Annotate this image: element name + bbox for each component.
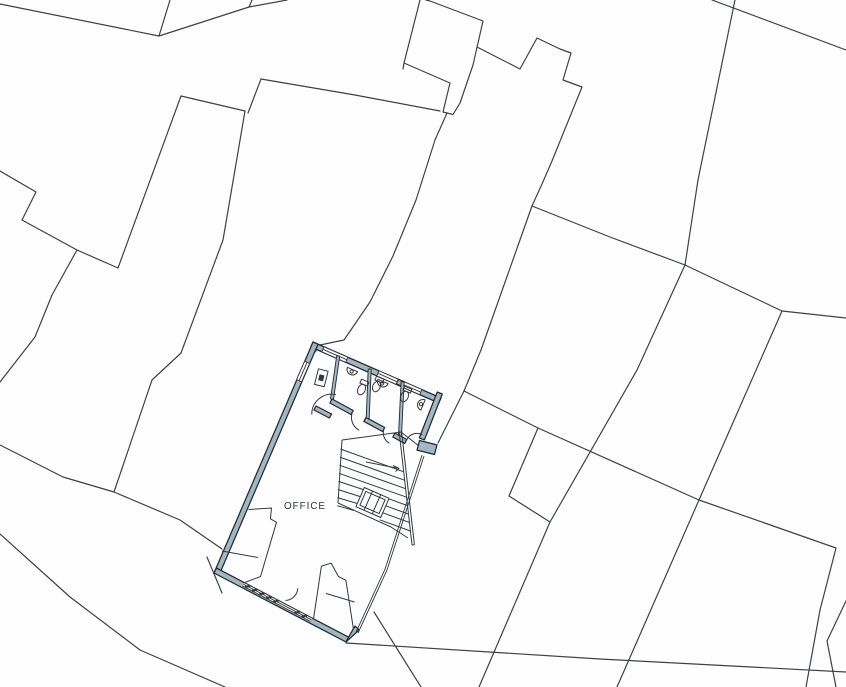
svg-text:OFFICE: OFFICE xyxy=(284,501,326,512)
